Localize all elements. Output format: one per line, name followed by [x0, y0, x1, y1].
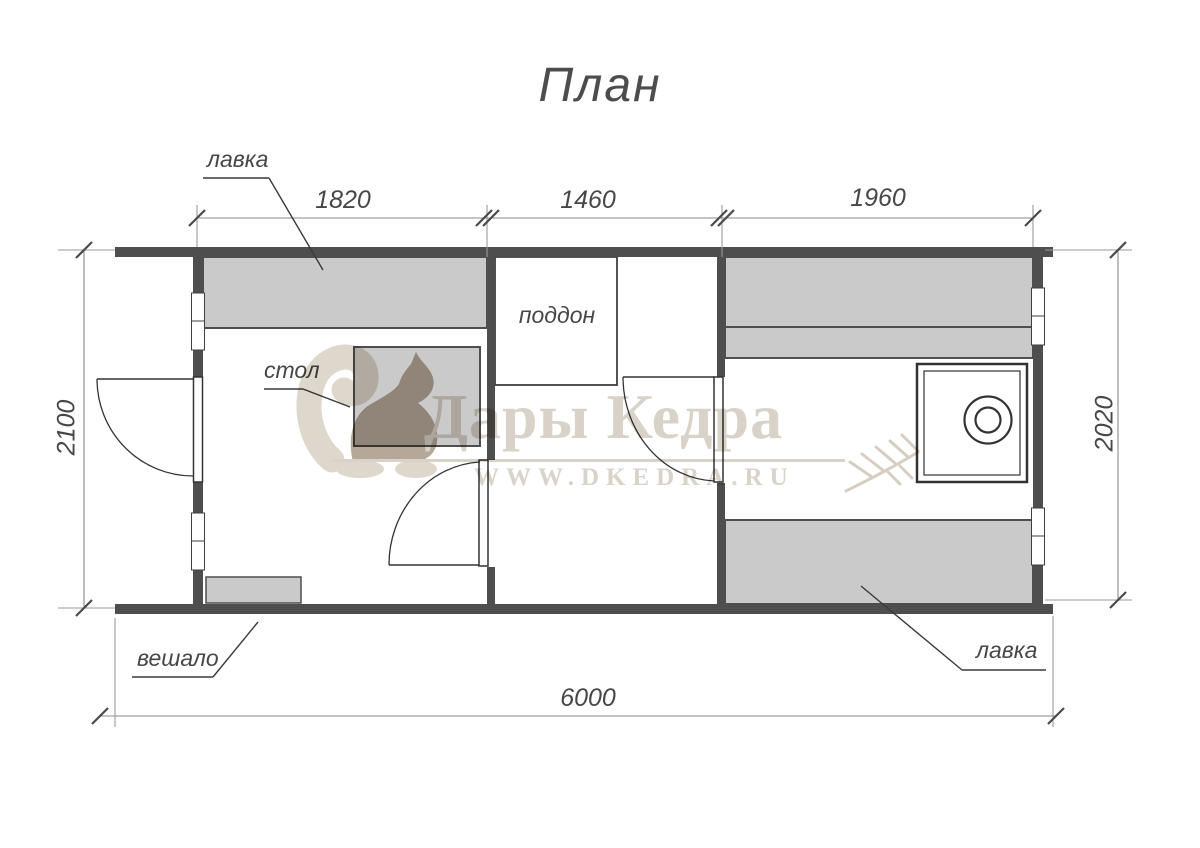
label-shower-tray: поддон: [512, 302, 602, 329]
stove: [917, 364, 1027, 482]
door-sauna: [623, 377, 723, 482]
top-wall: [115, 247, 1053, 257]
window-left-upper: [192, 293, 205, 350]
window-right-upper: [1032, 288, 1045, 345]
label-bench-top: лавка: [207, 146, 268, 173]
dim-bottom: 6000: [528, 684, 648, 713]
dim-top-2: 1460: [528, 186, 648, 215]
sauna-bench-upper-tier2: [725, 327, 1033, 358]
furniture: [203, 257, 1033, 604]
dim-left: 2100: [53, 368, 82, 488]
window-left-lower: [192, 513, 205, 570]
label-bench-bottom: лавка: [976, 637, 1037, 664]
partition2-upper: [717, 257, 725, 377]
label-table: стол: [264, 357, 320, 384]
bottom-wall: [115, 604, 1053, 614]
dim-top-1: 1820: [283, 186, 403, 215]
label-coat-rack: вешало: [137, 645, 219, 672]
entrance-door: [97, 377, 203, 482]
sauna-bench-upper-tier1: [725, 257, 1033, 327]
page-title: План: [450, 58, 750, 113]
partition1-upper: [487, 257, 495, 460]
floor-plan-drawing: [0, 0, 1200, 848]
window-right-lower: [1032, 508, 1045, 565]
partition1-lower: [487, 567, 495, 604]
coat-rack: [206, 577, 301, 603]
dim-top-3: 1960: [818, 184, 938, 213]
door-washroom: [389, 460, 488, 566]
partition2-lower: [717, 483, 725, 604]
bench-top-left: [203, 257, 487, 328]
dim-right: 2020: [1091, 364, 1120, 484]
floor-plan-page: План лавка стол поддон вешало лавка 1820…: [0, 0, 1200, 848]
table: [354, 347, 480, 446]
sauna-bench-lower: [725, 520, 1033, 604]
